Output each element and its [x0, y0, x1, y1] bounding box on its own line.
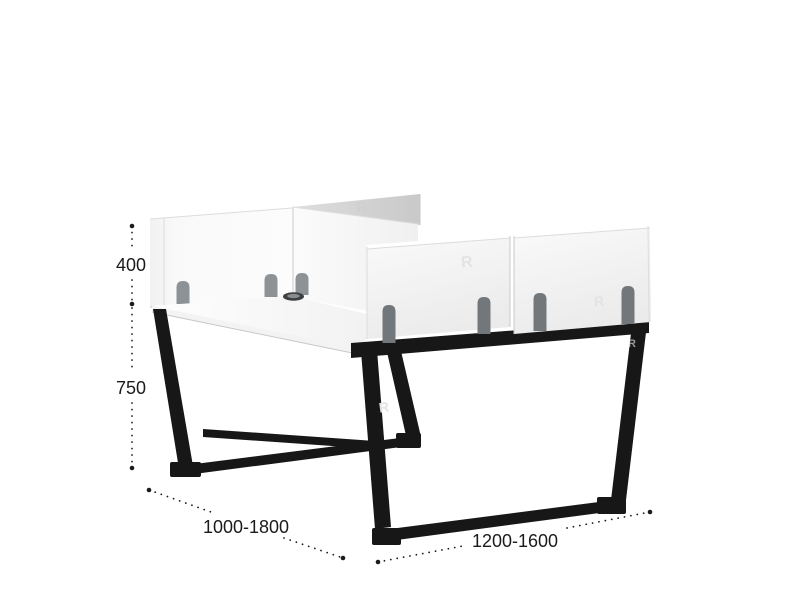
desk-illustration: R: [150, 194, 651, 545]
privacy-screen-back-left: [150, 208, 292, 308]
screen-bracket: [265, 274, 278, 297]
screen-height-label: 400: [116, 255, 146, 275]
width-range-label: 1000-1800: [203, 517, 289, 537]
front-screen-right-segment: R: [514, 224, 651, 334]
screen-bracket: [478, 297, 491, 334]
front-screen-left-segment: R: [367, 234, 510, 343]
dimension-screen-height: 400: [116, 224, 146, 307]
screen-bracket: [383, 305, 396, 343]
watermark-text: R: [355, 199, 368, 217]
dimension-desk-height: 750: [116, 308, 146, 470]
watermark-text: R: [628, 338, 636, 350]
watermark-text: R: [593, 293, 604, 310]
watermark-text: R: [378, 399, 390, 416]
depth-range-label: 1200-1600: [472, 531, 558, 551]
screen-bracket: [177, 281, 190, 304]
stretcher-bar: [203, 429, 375, 449]
watermark-text: R: [460, 254, 473, 272]
desk-dimension-diagram-page: R: [0, 0, 800, 600]
screen-bracket: [534, 293, 547, 331]
screen-bracket: [296, 273, 309, 295]
dimension-width: 1000-1800: [147, 488, 346, 561]
right-leg-frame: [351, 320, 649, 545]
desk-dimension-diagram: R: [0, 0, 800, 600]
cable-grommet: [283, 292, 304, 300]
screen-bracket: [622, 286, 635, 324]
desk-height-label: 750: [116, 378, 146, 398]
